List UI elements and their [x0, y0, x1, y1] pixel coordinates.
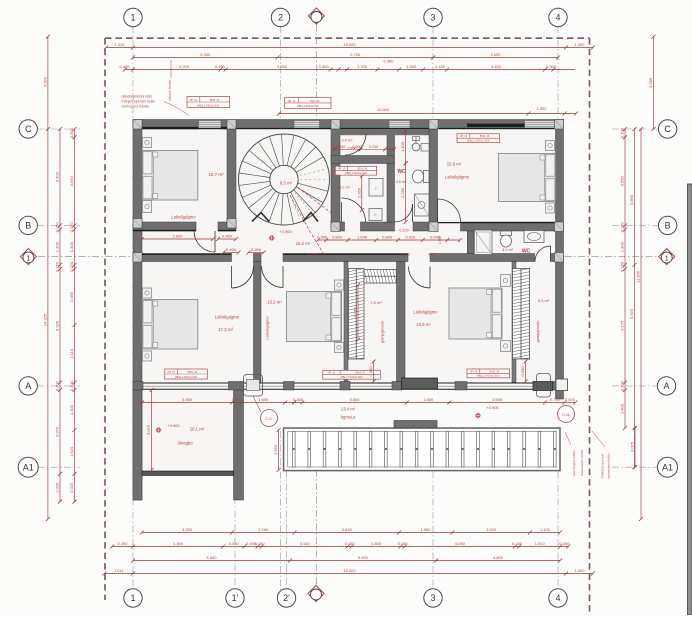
- svg-text:3.075: 3.075: [55, 426, 60, 437]
- svg-text:3.550: 3.550: [277, 64, 288, 69]
- svg-text:ИВЦ 3.600х2.600: ИВЦ 3.600х2.600: [197, 103, 220, 107]
- svg-text:2.600: 2.600: [172, 234, 183, 239]
- svg-text:Ls8o6gdgmo: Ls8o6gdgmo: [265, 316, 270, 340]
- svg-text:1: 1: [26, 255, 30, 262]
- svg-text:3.500: 3.500: [486, 527, 497, 532]
- svg-text:2.350: 2.350: [356, 187, 361, 198]
- svg-text:0.900: 0.900: [368, 366, 373, 377]
- svg-text:1.560: 1.560: [423, 397, 434, 402]
- svg-text:A: A: [25, 381, 31, 391]
- svg-text:1.300: 1.300: [55, 241, 60, 252]
- svg-text:15.900: 15.900: [343, 42, 356, 47]
- svg-text:0.800: 0.800: [332, 235, 343, 240]
- svg-text:1: 1: [130, 593, 135, 603]
- svg-text:7.5 m²: 7.5 m²: [370, 300, 382, 305]
- svg-text:0.300: 0.300: [319, 64, 330, 69]
- svg-text:0.150: 0.150: [69, 222, 74, 233]
- svg-text:1.300: 1.300: [69, 241, 74, 252]
- svg-text:0.150: 0.150: [55, 261, 60, 272]
- svg-text:4.050: 4.050: [455, 541, 466, 546]
- svg-text:4.450: 4.450: [491, 64, 502, 69]
- svg-text:Ls8o6gdgmo: Ls8o6gdgmo: [171, 215, 196, 220]
- svg-text:0.400: 0.400: [565, 397, 576, 402]
- svg-text:4.1 m²: 4.1 m²: [502, 248, 513, 252]
- svg-text:0.390: 0.390: [117, 541, 128, 546]
- svg-text:15.7 m²: 15.7 m²: [208, 172, 224, 177]
- svg-text:0.100: 0.100: [399, 229, 409, 233]
- svg-text:danobramcbnl ln6s: danobramcbnl ln6s: [122, 95, 153, 99]
- svg-text:1.560: 1.560: [273, 444, 278, 455]
- svg-text:Ls8o6gdgmo: Ls8o6gdgmo: [413, 310, 438, 315]
- svg-text:5.700: 5.700: [350, 52, 361, 57]
- svg-text:0.150: 0.150: [69, 261, 74, 272]
- svg-text:3.500: 3.500: [492, 397, 503, 402]
- svg-text:0.350: 0.350: [229, 541, 240, 546]
- svg-text:B: B: [665, 221, 671, 231]
- svg-text:1.000: 1.000: [574, 42, 585, 47]
- svg-text:A1: A1: [662, 462, 673, 472]
- svg-text:3: 3: [430, 13, 435, 23]
- svg-text:D-07: D-07: [265, 417, 272, 421]
- svg-text:E: E: [374, 212, 377, 217]
- svg-text:B: B: [25, 221, 31, 231]
- svg-text:1.000: 1.000: [574, 568, 585, 573]
- svg-text:1.300: 1.300: [620, 241, 625, 252]
- svg-text:2.290: 2.290: [258, 527, 269, 532]
- svg-text:1.800: 1.800: [371, 541, 382, 546]
- svg-text:0.300: 0.300: [317, 235, 328, 240]
- svg-text:0.150: 0.150: [512, 541, 523, 546]
- svg-text:13.4 m²: 13.4 m²: [341, 407, 356, 412]
- svg-text:1.050: 1.050: [406, 64, 417, 69]
- svg-text:15.900: 15.900: [343, 568, 356, 573]
- svg-text:C: C: [664, 124, 671, 134]
- svg-text:bsammjpbm 6o86o: bsammjpbm 6o86o: [572, 450, 576, 476]
- svg-text:5.400: 5.400: [358, 555, 369, 560]
- svg-text:+3.900: +3.900: [167, 423, 180, 428]
- svg-text:3.200: 3.200: [179, 64, 190, 69]
- svg-text:1: 1: [665, 255, 669, 262]
- svg-text:3.300: 3.300: [182, 527, 193, 532]
- svg-text:10.1 m²: 10.1 m²: [190, 427, 205, 432]
- svg-text:WC: WC: [397, 169, 406, 175]
- svg-text:5.925: 5.925: [629, 308, 634, 319]
- svg-text:17.3 m²: 17.3 m²: [218, 327, 234, 332]
- svg-text:1': 1': [232, 593, 239, 603]
- svg-text:0.900: 0.900: [520, 366, 525, 377]
- svg-text:1.025: 1.025: [55, 482, 60, 493]
- svg-text:+3.900: +3.900: [279, 229, 292, 234]
- svg-text:2.0 m²: 2.0 m²: [342, 139, 353, 143]
- svg-text:0.300: 0.300: [620, 127, 625, 138]
- svg-text:A1: A1: [23, 462, 34, 472]
- svg-text:0.300: 0.300: [383, 59, 394, 64]
- svg-text:bsdmmjpbm 8o86o: bsdmmjpbm 8o86o: [607, 453, 611, 479]
- svg-text:0.300: 0.300: [546, 64, 557, 69]
- svg-text:4.2 m²: 4.2 m²: [339, 186, 350, 190]
- svg-text:0.800: 0.800: [382, 235, 393, 240]
- svg-text:5.300: 5.300: [200, 52, 211, 57]
- svg-text:1.400: 1.400: [620, 403, 625, 414]
- svg-text:0.910: 0.910: [405, 235, 416, 240]
- svg-text:0.900: 0.900: [430, 235, 441, 240]
- svg-text:1.011: 1.011: [114, 568, 124, 573]
- svg-text:WC: WC: [522, 249, 531, 255]
- svg-text:1.960: 1.960: [421, 527, 432, 532]
- svg-text:2.060: 2.060: [69, 291, 74, 302]
- svg-text:0.350: 0.350: [232, 397, 243, 402]
- svg-text:Ls8o6gdgmo: Ls8o6gdgmo: [445, 175, 470, 180]
- svg-text:NP. 10: NP. 10: [328, 371, 336, 375]
- svg-text:NP. 10: NP. 10: [190, 98, 198, 102]
- svg-text:1.010: 1.010: [114, 42, 125, 47]
- svg-text:0.300: 0.300: [559, 541, 570, 546]
- svg-text:3.075: 3.075: [146, 424, 151, 435]
- svg-text:NP. 10: NP. 10: [288, 99, 296, 103]
- svg-text:1.400: 1.400: [69, 404, 74, 415]
- svg-text:8601-36: 8601-36: [210, 98, 220, 102]
- svg-text:4: 4: [555, 593, 560, 603]
- svg-text:0.300: 0.300: [119, 64, 130, 69]
- svg-text:0.150: 0.150: [435, 64, 446, 69]
- svg-text:3.150: 3.150: [300, 541, 311, 546]
- svg-text:4.566: 4.566: [308, 253, 318, 257]
- svg-text:0.490: 0.490: [226, 247, 237, 252]
- svg-text:0.300: 0.300: [620, 380, 625, 391]
- svg-text:4.600: 4.600: [490, 52, 501, 57]
- svg-text:4: 4: [555, 13, 560, 23]
- svg-text:1: 1: [130, 13, 135, 23]
- svg-text:3.096: 3.096: [42, 76, 47, 87]
- svg-text:D-06: D-06: [562, 413, 569, 417]
- svg-text:0.150: 0.150: [345, 541, 356, 546]
- svg-text:0.300: 0.300: [69, 127, 74, 138]
- svg-text:0.150: 0.150: [398, 541, 409, 546]
- svg-text:1.600: 1.600: [258, 397, 269, 402]
- svg-text:0.165: 0.165: [620, 261, 625, 272]
- svg-text:0.190: 0.190: [215, 64, 226, 69]
- svg-text:4.316: 4.316: [428, 253, 438, 257]
- svg-text:3.096: 3.096: [648, 77, 653, 88]
- svg-text:1.100: 1.100: [540, 527, 551, 532]
- svg-text:1.700: 1.700: [357, 64, 368, 69]
- svg-text:ИВЦ 3.600х2.600: ИВЦ 3.600х2.600: [297, 104, 320, 108]
- svg-text:15.2 m²: 15.2 m²: [296, 241, 311, 246]
- svg-text:5.925: 5.925: [55, 320, 60, 331]
- svg-text:0.355: 0.355: [251, 247, 262, 252]
- svg-text:0.700: 0.700: [369, 145, 378, 149]
- svg-text:1.040: 1.040: [357, 235, 368, 240]
- svg-text:0.150: 0.150: [55, 222, 60, 233]
- svg-text:3.860: 3.860: [629, 194, 634, 205]
- svg-text:8601-36: 8601-36: [310, 99, 320, 103]
- svg-text:1.300: 1.300: [536, 106, 547, 111]
- svg-text:NP. 10: NP. 10: [167, 370, 175, 374]
- svg-text:3.600: 3.600: [55, 171, 60, 182]
- svg-text:1.025: 1.025: [69, 482, 74, 493]
- svg-text:C: C: [25, 124, 32, 134]
- svg-text:11.325: 11.325: [636, 270, 641, 283]
- svg-text:0.150: 0.150: [620, 222, 625, 233]
- svg-text:2: 2: [278, 13, 283, 23]
- svg-text:0.400: 0.400: [222, 234, 233, 239]
- svg-text:3.075: 3.075: [630, 441, 635, 452]
- svg-text:4.175: 4.175: [620, 320, 625, 331]
- svg-text:bsaemosahn 6o86o: bsaemosahn 6o86o: [580, 449, 584, 476]
- svg-text:10.900: 10.900: [377, 107, 390, 112]
- svg-text:b3soce 3cmbo: b3soce 3cmbo: [168, 79, 172, 100]
- svg-text:13.2 m²: 13.2 m²: [267, 300, 282, 305]
- svg-text:2.255: 2.255: [400, 187, 405, 198]
- svg-text:9.5 m²: 9.5 m²: [280, 181, 293, 186]
- svg-text:8601-36: 8601-36: [188, 370, 198, 374]
- svg-text:m3ryemqnmsnl 6s8o: m3ryemqnmsnl 6s8o: [122, 100, 155, 104]
- svg-text:1.510: 1.510: [535, 541, 546, 546]
- svg-text:gsmpgmodo: gsmpgmodo: [380, 320, 385, 343]
- svg-text:2': 2': [283, 593, 290, 603]
- svg-text:3.840: 3.840: [349, 397, 360, 402]
- svg-text:3.550: 3.550: [69, 176, 74, 187]
- svg-text:14.325: 14.325: [42, 313, 47, 326]
- svg-text:bgmsLs: bgmsLs: [341, 415, 356, 420]
- svg-text:0.999: 0.999: [400, 253, 410, 257]
- svg-text:0699018cmml 9o8: 0699018cmml 9o8: [601, 453, 605, 478]
- svg-text:gsmpgmodo: gsmpgmodo: [535, 320, 540, 343]
- svg-text:dmagbo: dmagbo: [177, 441, 193, 446]
- svg-text:3.300: 3.300: [173, 541, 184, 546]
- svg-text:cnmrqcmo b3s6o: cnmrqcmo b3s6o: [122, 105, 150, 109]
- svg-text:0.300: 0.300: [55, 380, 60, 391]
- svg-text:4.600: 4.600: [493, 555, 504, 560]
- svg-text:3.550: 3.550: [620, 176, 625, 187]
- svg-text:ИВЦ 3.600х2.600: ИВЦ 3.600х2.600: [477, 374, 500, 378]
- svg-text:3.840: 3.840: [342, 527, 353, 532]
- svg-text:Ls8o6gdgmo: Ls8o6gdgmo: [215, 315, 240, 320]
- svg-text:0.150: 0.150: [255, 541, 266, 546]
- svg-text:16.9 m²: 16.9 m²: [416, 322, 431, 327]
- svg-text:2.110: 2.110: [69, 348, 74, 358]
- svg-text:6.3 m²: 6.3 m²: [538, 298, 550, 303]
- svg-text:15.9 m²: 15.9 m²: [447, 162, 462, 167]
- svg-text:1.100: 1.100: [400, 141, 405, 152]
- svg-text:genmsqn: genmsqn: [360, 131, 373, 135]
- svg-text:0.110: 0.110: [332, 147, 341, 151]
- svg-text:0.890: 0.890: [348, 147, 357, 151]
- svg-text:A: A: [663, 381, 669, 391]
- svg-text:0.300: 0.300: [69, 380, 74, 391]
- svg-text:ИВЦ 3.600х2.600: ИВЦ 3.600х2.600: [467, 138, 490, 142]
- svg-text:0.710: 0.710: [550, 397, 561, 402]
- svg-text:1.620: 1.620: [69, 446, 74, 457]
- svg-text:3.300: 3.300: [182, 397, 193, 402]
- svg-text:+3.900: +3.900: [486, 405, 499, 410]
- svg-text:ИВЦ 3.600х2.600: ИВЦ 3.600х2.600: [175, 375, 198, 379]
- svg-text:3.175: 3.175: [353, 307, 358, 318]
- svg-text:5.600: 5.600: [206, 555, 217, 560]
- svg-text:3: 3: [430, 593, 435, 603]
- svg-text:ИВЦ 3.600х2.600: ИВЦ 3.600х2.600: [341, 375, 364, 379]
- svg-text:0.300: 0.300: [293, 397, 304, 402]
